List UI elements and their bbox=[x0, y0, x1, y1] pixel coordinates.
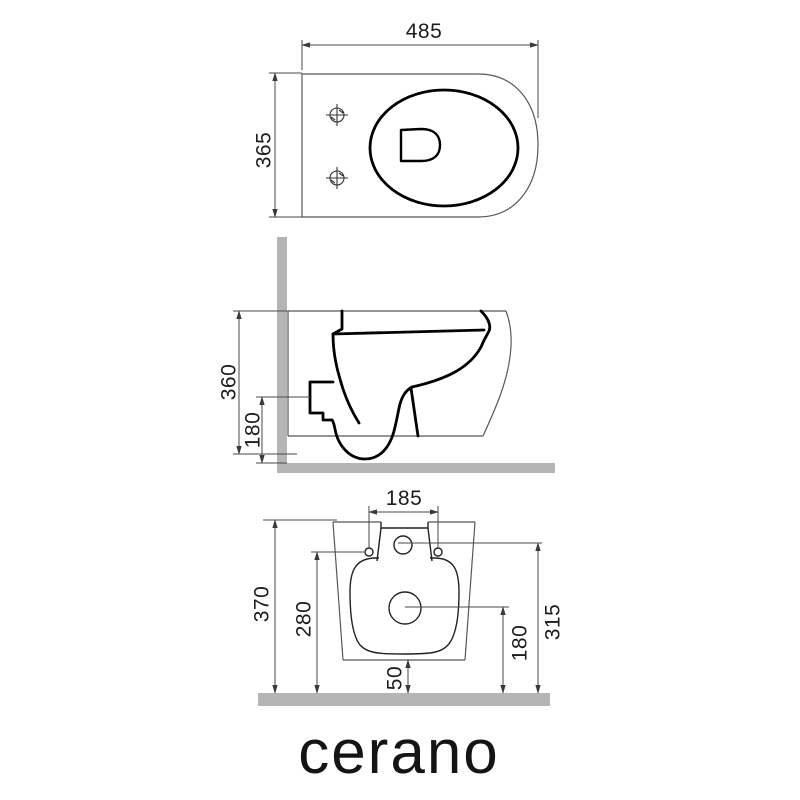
dim-depth: 365 bbox=[252, 73, 302, 217]
fixing-hole-left bbox=[365, 548, 373, 556]
dim-hole-height-label: 280 bbox=[292, 601, 315, 638]
mounting-hole-marker-bottom bbox=[326, 167, 348, 189]
top-view-flush-opening bbox=[401, 129, 440, 161]
top-view-body-outline bbox=[302, 74, 538, 217]
side-view-section bbox=[310, 311, 490, 459]
inlet-recess bbox=[377, 522, 432, 561]
technical-drawing-page: 485 365 bbox=[0, 0, 800, 800]
rear-floor-bar bbox=[258, 693, 550, 706]
rear-view: 185 370 280 315 180 50 bbox=[250, 487, 564, 706]
dim-depth-label: 365 bbox=[252, 132, 275, 169]
fixing-hole-right bbox=[434, 548, 442, 556]
wall-bar bbox=[277, 237, 287, 473]
brand-logo: cerano bbox=[298, 718, 500, 787]
dim-outlet-height: 180 bbox=[241, 397, 310, 463]
dim-hole-height: 280 bbox=[292, 552, 364, 693]
dim-width: 485 bbox=[302, 20, 538, 118]
mounting-hole-marker-top bbox=[326, 104, 348, 126]
drain-hole bbox=[389, 592, 421, 624]
dim-total-height-label: 370 bbox=[250, 586, 273, 623]
dim-bottom-clearance-label: 50 bbox=[383, 666, 406, 690]
dim-height-label: 360 bbox=[217, 364, 240, 401]
top-view-bowl-rim bbox=[370, 90, 518, 206]
side-view: 360 180 bbox=[217, 237, 555, 473]
side-floor-bar bbox=[277, 463, 555, 473]
wc-dimension-drawing: 485 365 bbox=[0, 0, 800, 800]
dim-drain-height-label: 180 bbox=[508, 625, 531, 662]
dim-bottom-clearance: 50 bbox=[383, 660, 408, 693]
dim-width-label: 485 bbox=[406, 20, 443, 43]
top-view: 485 365 bbox=[252, 20, 538, 217]
rear-view-bowl-outline bbox=[350, 558, 459, 654]
dim-outlet-height-label: 180 bbox=[241, 412, 264, 449]
dim-inlet-height-label: 315 bbox=[541, 604, 564, 641]
dim-hole-spacing-label: 185 bbox=[386, 487, 423, 510]
dim-inlet-height: 315 bbox=[398, 543, 564, 693]
